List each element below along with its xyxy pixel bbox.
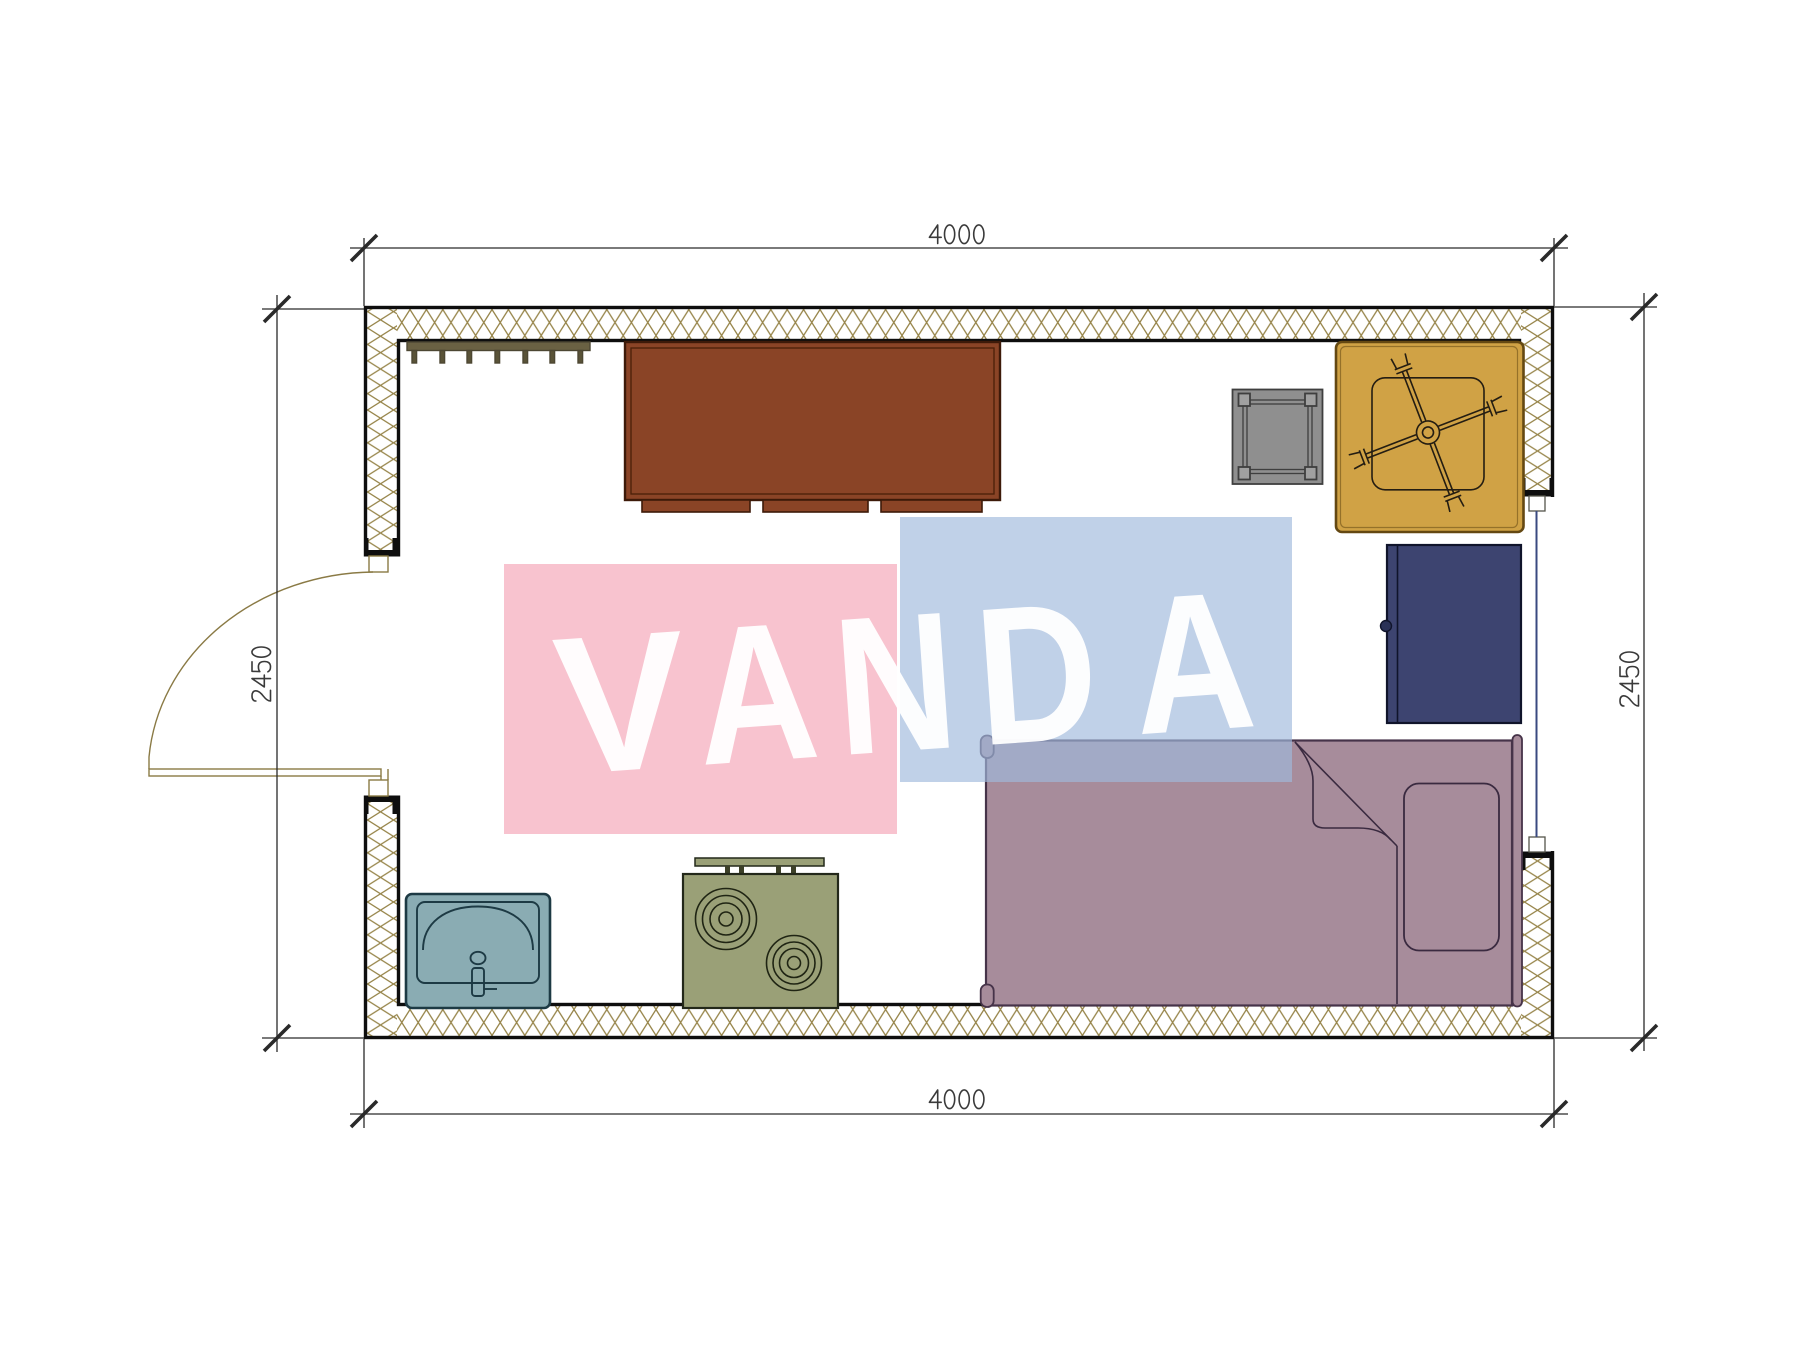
svg-text:A: A: [1126, 549, 1261, 777]
svg-text:D: D: [969, 560, 1104, 788]
svg-text:N: N: [828, 569, 963, 797]
svg-text:A: A: [689, 579, 824, 807]
svg-text:V: V: [548, 589, 694, 817]
